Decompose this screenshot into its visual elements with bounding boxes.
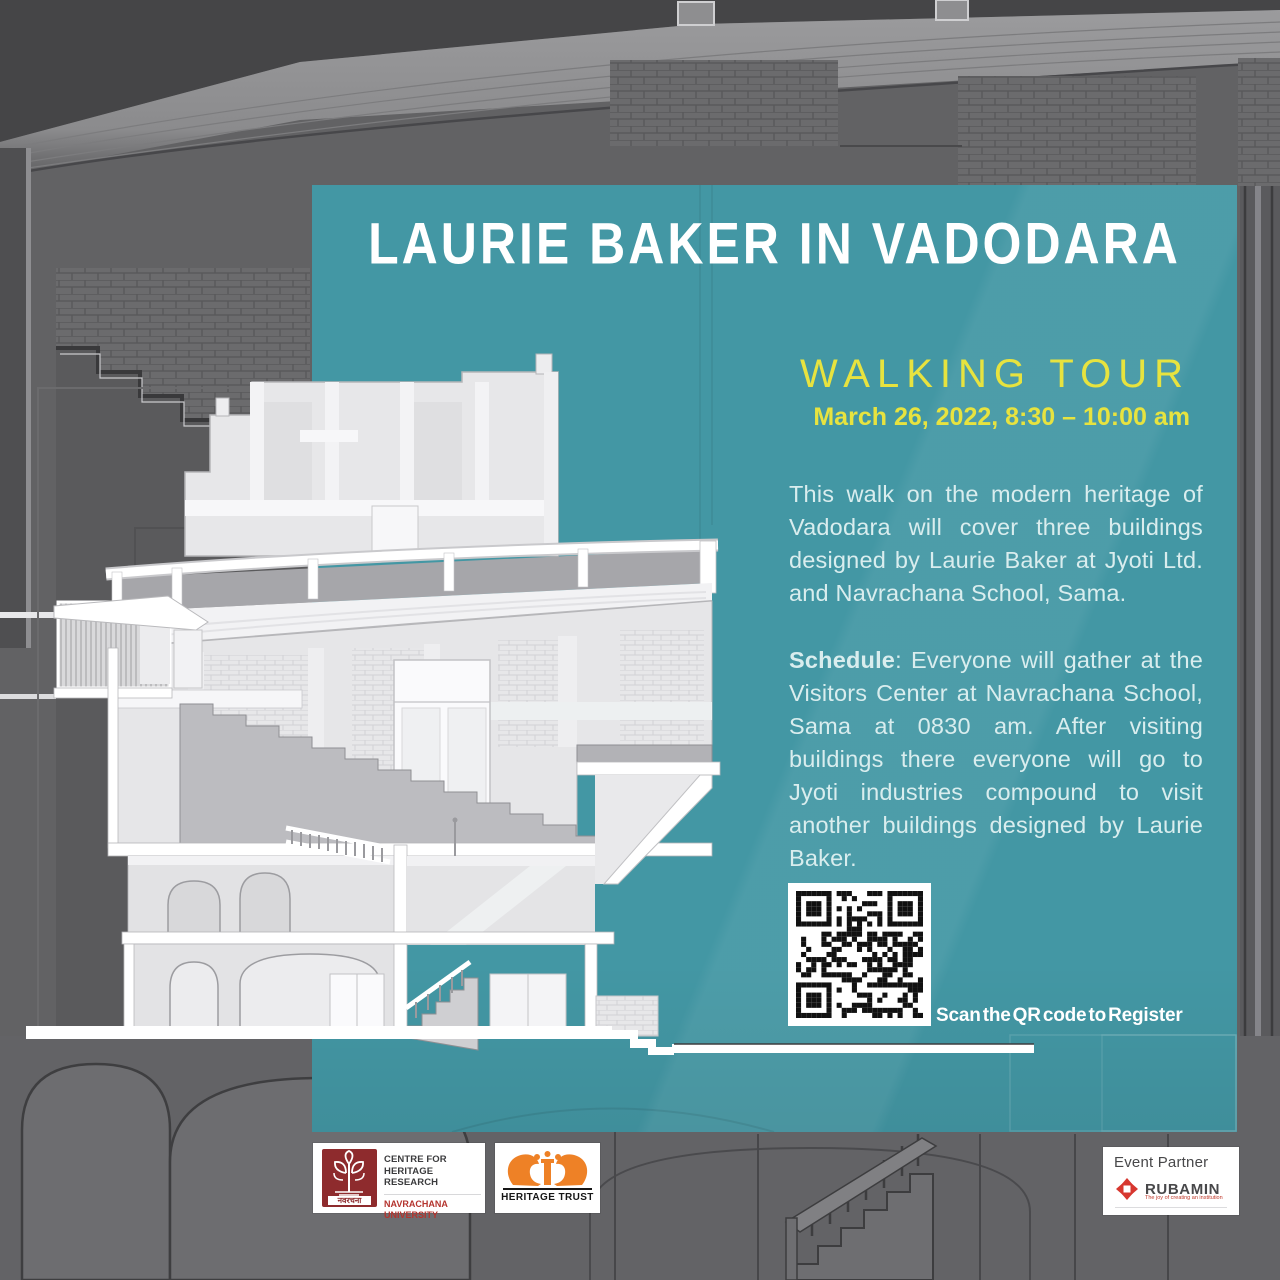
qr-caption: Scan the QR code to Register <box>936 1005 1206 1027</box>
chr-line1: CENTRE FOR <box>384 1154 481 1166</box>
event-partner-rule <box>1115 1207 1227 1208</box>
heritage-trust-birds-icon <box>504 1149 591 1187</box>
heritage-trust-rule <box>503 1188 592 1190</box>
qr-code-pattern <box>796 891 923 1018</box>
heritage-trust-logo-card: HERITAGE TRUST <box>495 1143 600 1213</box>
event-partner-heading: Event Partner <box>1114 1154 1208 1171</box>
event-block: WALKING TOUR March 26, 2022, 8:30 – 10:0… <box>690 352 1190 432</box>
poster-canvas: LAURIE BAKER IN VADODARA WALKING TOUR Ma… <box>0 0 1280 1280</box>
qr-code <box>788 883 931 1026</box>
chr-devanagari-label: नवरचना <box>322 1195 377 1206</box>
chr-logo-card: नवरचना CENTRE FOR HERITAGE RESEARCH NAVR… <box>313 1143 485 1213</box>
schedule-text: : Everyone will gather at the Visitors C… <box>789 647 1203 871</box>
poster-title: LAURIE BAKER IN VADODARA <box>312 210 1237 277</box>
rubamin-diamond-icon <box>1116 1178 1138 1200</box>
heritage-trust-label: HERITAGE TRUST <box>495 1192 600 1203</box>
rubamin-tagline: The joy of creating an institution <box>1145 1195 1223 1201</box>
event-datetime: March 26, 2022, 8:30 – 10:00 am <box>690 402 1190 432</box>
event-type-heading: WALKING TOUR <box>690 352 1190 396</box>
chr-line2: HERITAGE RESEARCH <box>384 1166 481 1189</box>
schedule-paragraph: Schedule: Everyone will gather at the Vi… <box>789 644 1203 875</box>
event-partner-card: Event Partner RUBAMIN The joy of creatin… <box>1103 1147 1239 1215</box>
description-copy: This walk on the modern heritage of Vado… <box>789 478 1203 875</box>
intro-paragraph: This walk on the modern heritage of Vado… <box>789 478 1203 610</box>
chr-university-emblem: नवरचना <box>322 1149 377 1207</box>
chr-line3: NAVRACHANA UNIVERSITY <box>384 1194 481 1221</box>
schedule-label: Schedule <box>789 647 895 673</box>
